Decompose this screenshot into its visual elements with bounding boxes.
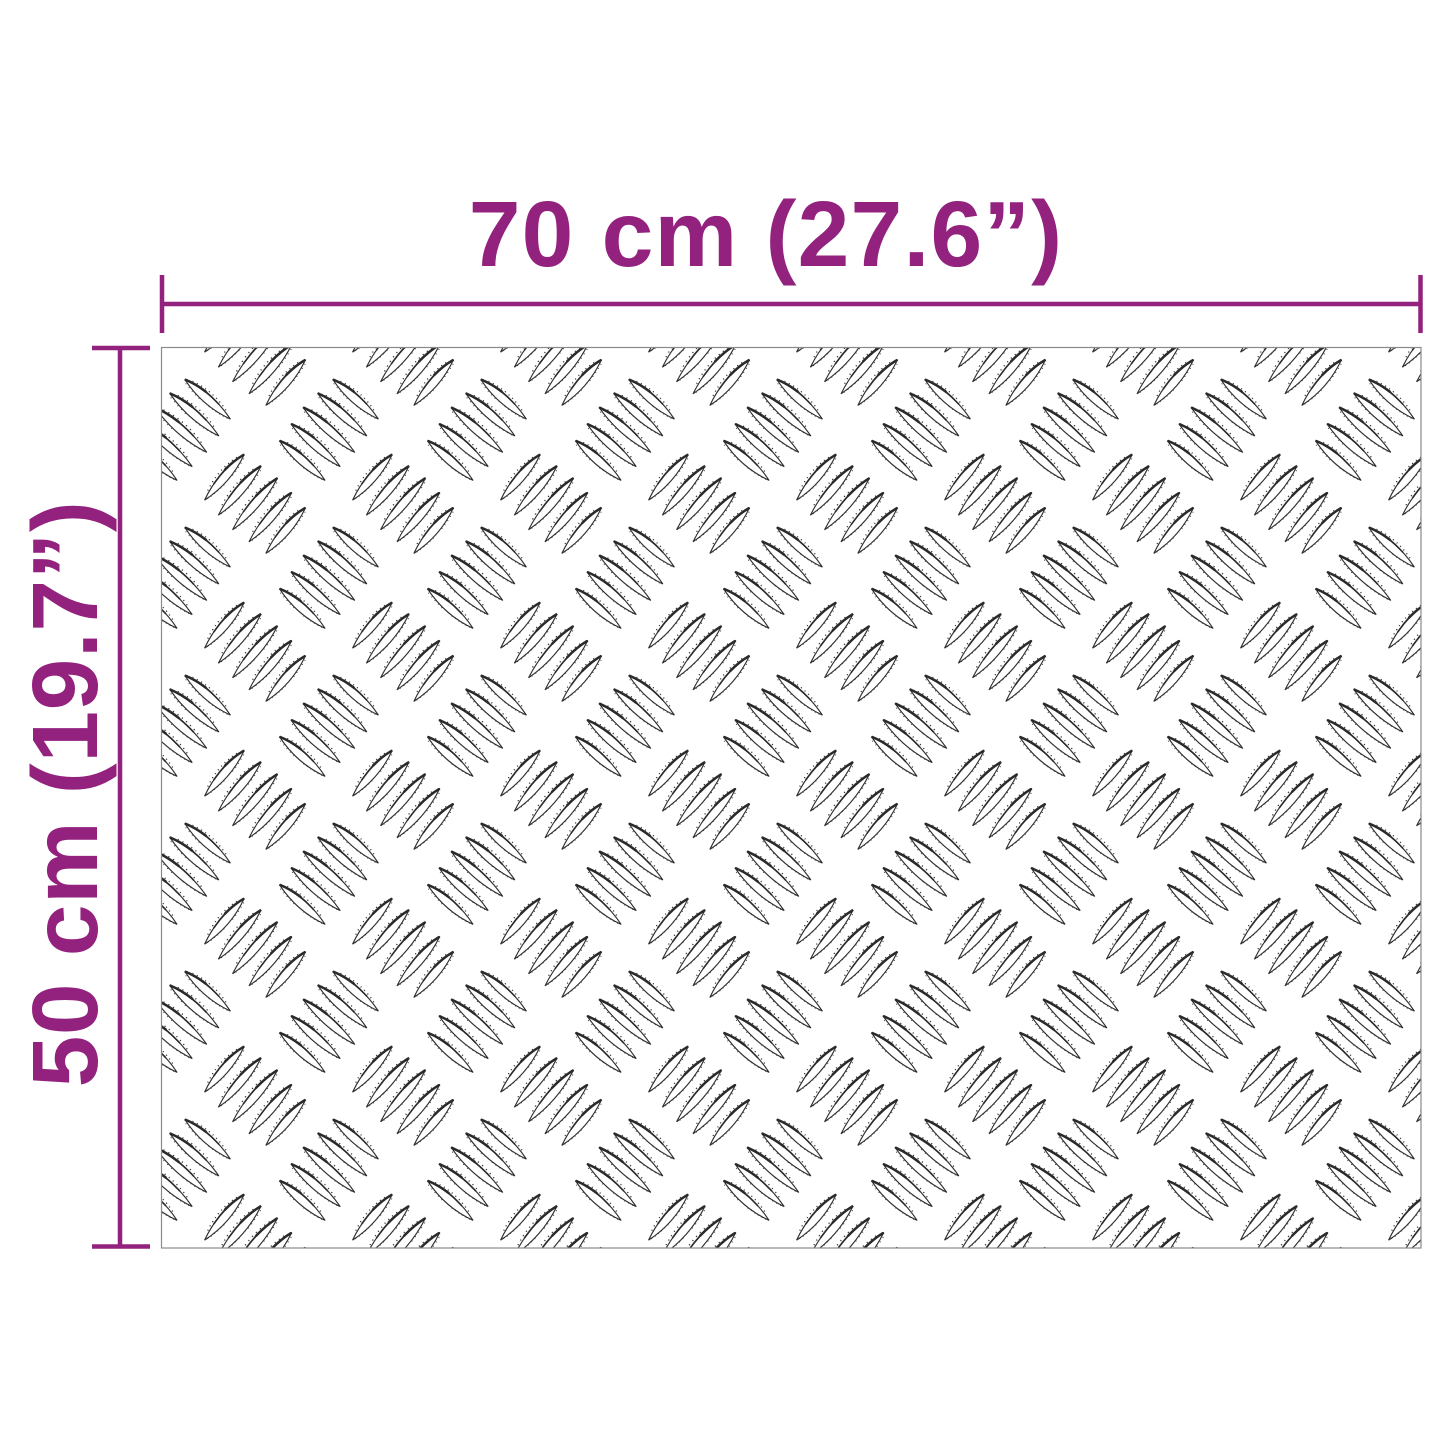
svg-text:50 cm (19.7”): 50 cm (19.7”)	[13, 501, 117, 1088]
svg-text:70 cm (27.6”): 70 cm (27.6”)	[469, 182, 1064, 286]
